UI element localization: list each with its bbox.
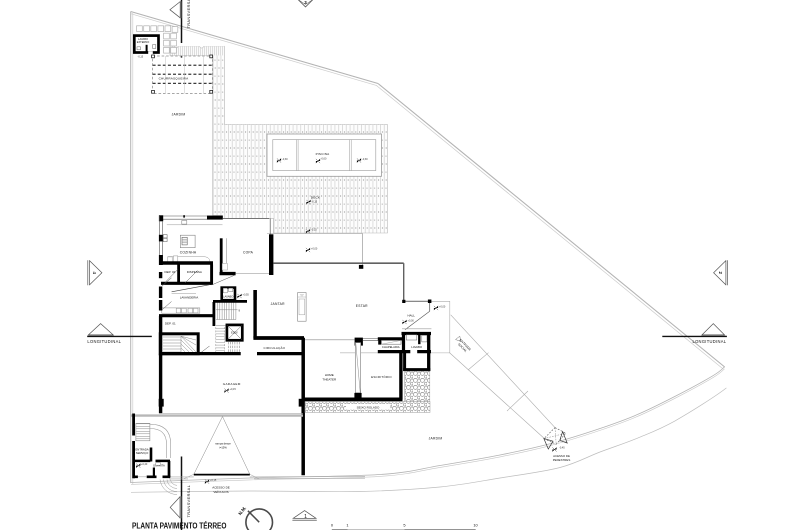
svg-text:GARAGEM: GARAGEM bbox=[223, 382, 241, 386]
svg-text:DECK: DECK bbox=[311, 196, 321, 200]
svg-text:LONGITUDINAL: LONGITUDINAL bbox=[693, 339, 727, 344]
svg-text:PISCINA: PISCINA bbox=[316, 152, 331, 156]
svg-text:SEIXO ROLADO: SEIXO ROLADO bbox=[357, 405, 380, 409]
svg-text:i=15%: i=15% bbox=[219, 445, 227, 449]
svg-text:LONGITUDINAL: LONGITUDINAL bbox=[87, 339, 121, 344]
svg-text:VEÍCULOS: VEÍCULOS bbox=[213, 490, 228, 494]
svg-text:-0,15: -0,15 bbox=[311, 229, 317, 232]
svg-text:CIRCULAÇÃO: CIRCULAÇÃO bbox=[263, 345, 285, 350]
svg-text:-0,30: -0,30 bbox=[362, 158, 368, 161]
svg-text:+0,00: +0,00 bbox=[311, 247, 318, 250]
svg-text:SERVIÇO: SERVIÇO bbox=[136, 451, 149, 455]
svg-text:COPA: COPA bbox=[243, 250, 254, 254]
svg-text:5: 5 bbox=[403, 522, 405, 527]
svg-text:JARDIM: JARDIM bbox=[172, 112, 186, 116]
svg-text:+0,55: +0,55 bbox=[243, 293, 250, 296]
svg-text:1: 1 bbox=[346, 522, 348, 527]
svg-text:JANTAR: JANTAR bbox=[271, 302, 285, 306]
svg-text:ESCRITÓRIO: ESCRITÓRIO bbox=[371, 374, 392, 379]
svg-text:EXTERNO: EXTERNO bbox=[137, 40, 150, 44]
svg-text:+0,15: +0,15 bbox=[230, 388, 237, 391]
svg-text:+0,00: +0,00 bbox=[408, 319, 415, 322]
svg-text:COZINHA: COZINHA bbox=[180, 250, 197, 254]
svg-text:DEP. 01: DEP. 01 bbox=[165, 322, 176, 326]
svg-text:-0,30: -0,30 bbox=[282, 158, 288, 161]
svg-text:PLANTA PAVIMENTO TÉRREO: PLANTA PAVIMENTO TÉRREO bbox=[132, 521, 227, 530]
svg-text:TRANSVERSAL: TRANSVERSAL bbox=[186, 484, 191, 517]
svg-text:JARDIM: JARDIM bbox=[429, 437, 443, 441]
svg-text:-0,15: -0,15 bbox=[138, 56, 144, 59]
svg-text:LAVABO: LAVABO bbox=[411, 345, 423, 349]
svg-text:+0,15: +0,15 bbox=[210, 479, 217, 482]
svg-text:ESTAR: ESTAR bbox=[356, 304, 368, 308]
svg-text:1: 1 bbox=[304, 514, 307, 520]
svg-text:+0,40: +0,40 bbox=[141, 463, 148, 466]
svg-text:CHAPELARIA: CHAPELARIA bbox=[382, 345, 400, 349]
svg-text:HALL: HALL bbox=[407, 313, 415, 317]
svg-text:-0,60: -0,60 bbox=[321, 158, 327, 161]
svg-text:rampa desce: rampa desce bbox=[215, 442, 231, 446]
svg-text:LAVANDERIA: LAVANDERIA bbox=[180, 296, 199, 300]
svg-text:THEATER: THEATER bbox=[322, 377, 337, 381]
svg-text:LAVABO: LAVABO bbox=[223, 295, 233, 299]
svg-text:PEDESTRES: PEDESTRES bbox=[553, 458, 571, 462]
svg-text:CHURRASQUEIRA: CHURRASQUEIRA bbox=[159, 77, 189, 81]
svg-text:-0,15: -0,15 bbox=[312, 201, 318, 204]
svg-text:ELEV.: ELEV. bbox=[231, 332, 238, 335]
svg-text:ACESSO DE: ACESSO DE bbox=[212, 486, 230, 490]
svg-text:TRANSVERSAL: TRANSVERSAL bbox=[186, 0, 191, 29]
svg-text:+0,00: +0,00 bbox=[439, 305, 446, 308]
svg-text:-0,45: -0,45 bbox=[559, 447, 565, 450]
